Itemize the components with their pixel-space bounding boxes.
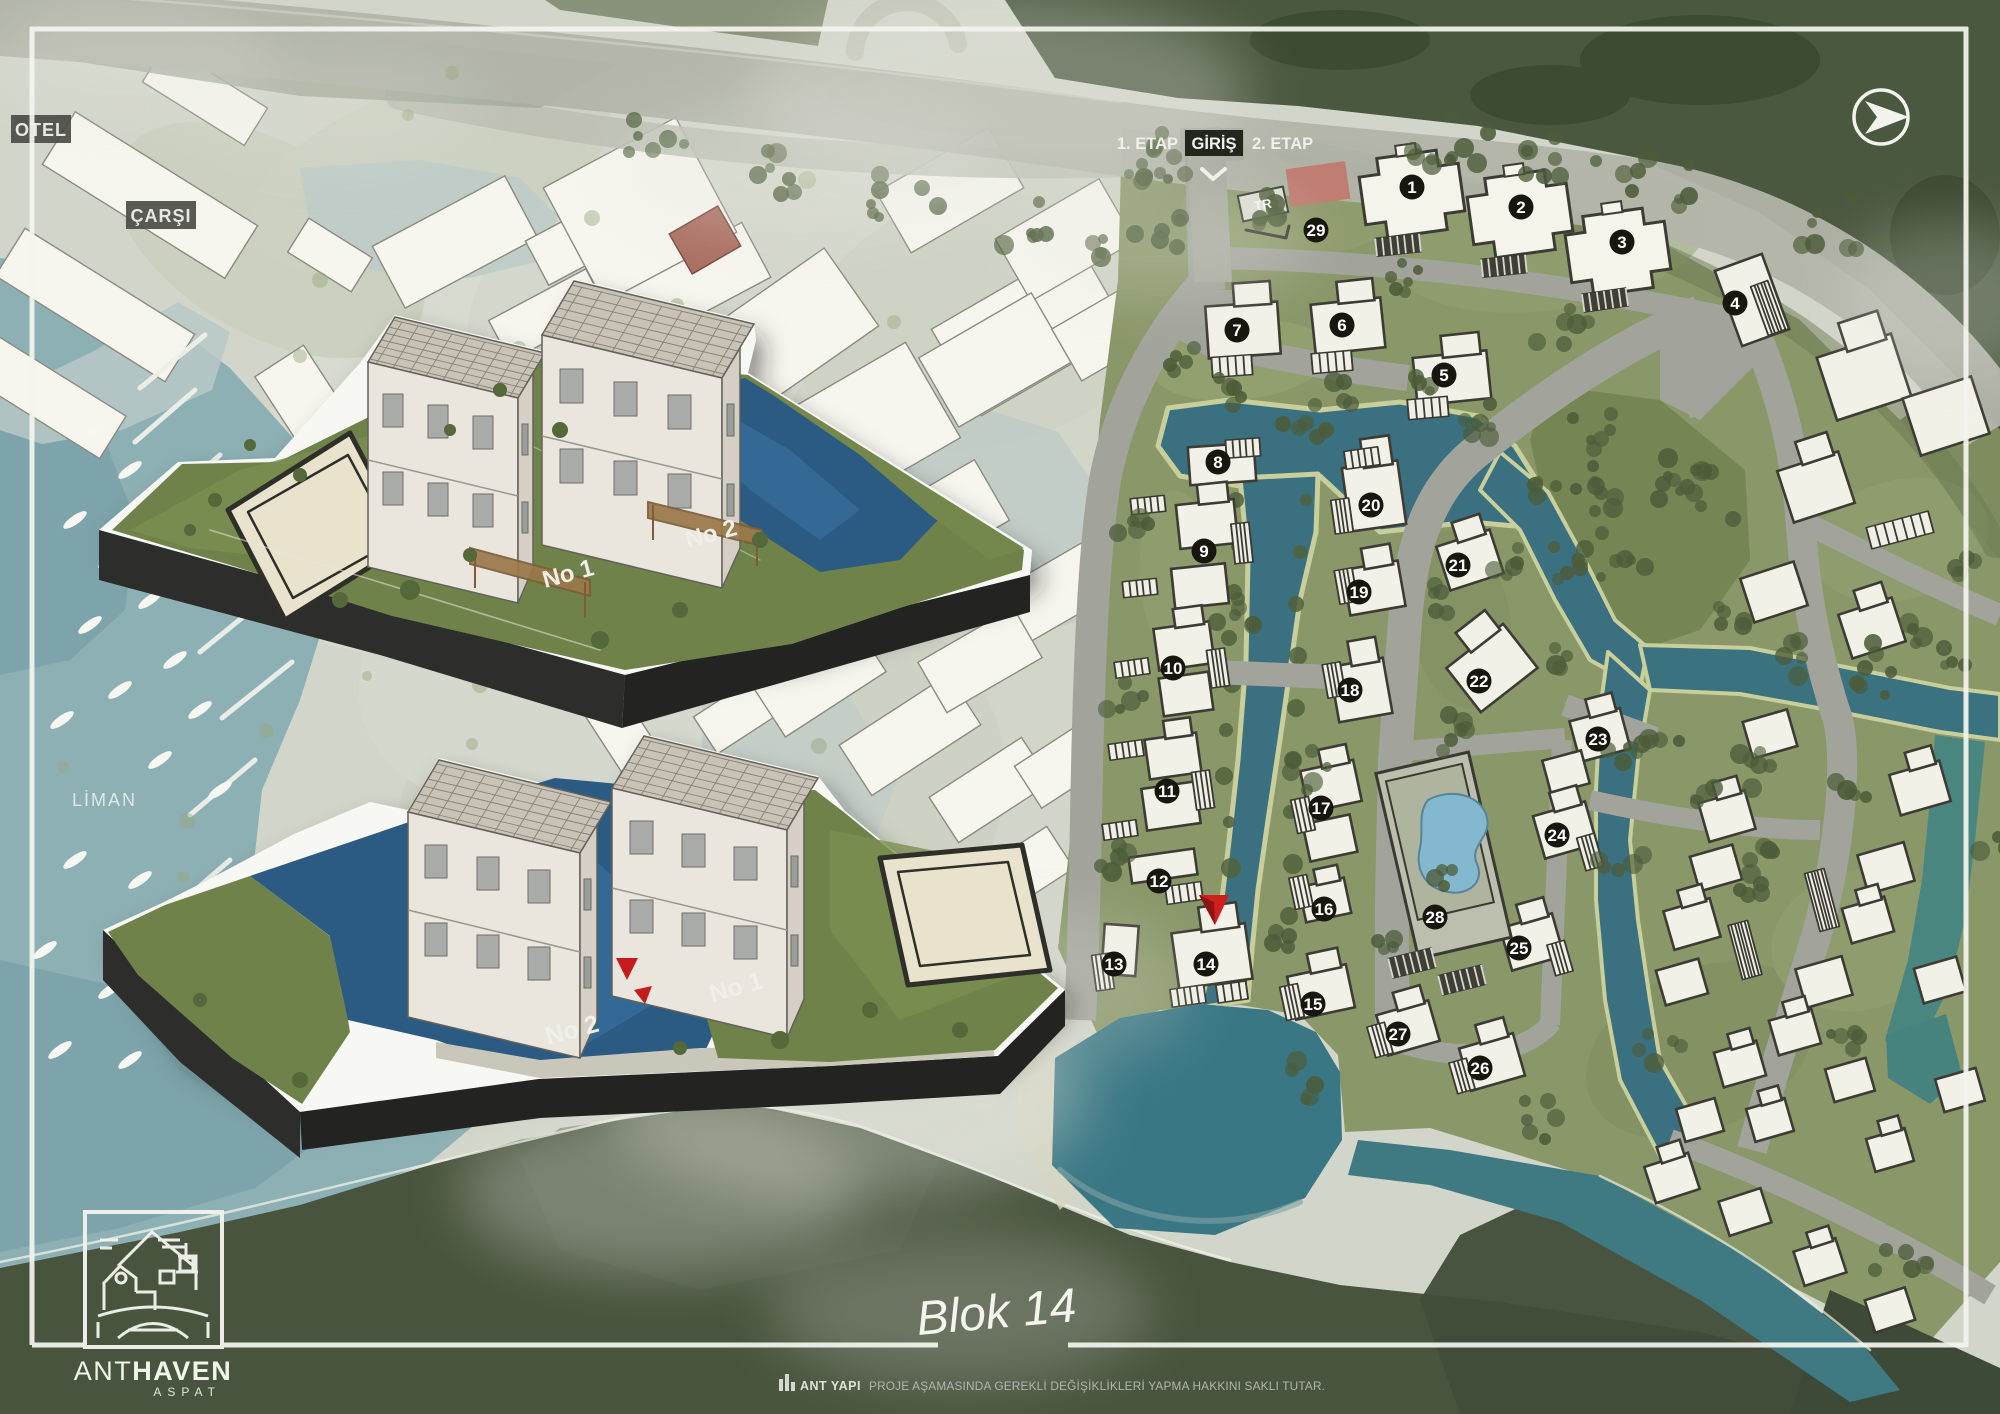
svg-text:8: 8	[1213, 453, 1222, 472]
svg-text:ANT YAPI: ANT YAPI	[800, 1379, 861, 1393]
svg-text:14: 14	[1197, 955, 1216, 974]
svg-text:25: 25	[1510, 939, 1529, 958]
svg-text:LİMAN: LİMAN	[72, 790, 137, 810]
svg-text:OTEL: OTEL	[15, 120, 67, 140]
svg-text:3: 3	[1617, 233, 1626, 252]
svg-text:23: 23	[1589, 730, 1608, 749]
svg-text:2. ETAP: 2. ETAP	[1252, 135, 1313, 153]
svg-text:19: 19	[1350, 583, 1369, 602]
svg-text:5: 5	[1439, 366, 1448, 385]
svg-text:17: 17	[1312, 799, 1331, 818]
svg-text:2: 2	[1516, 198, 1525, 217]
svg-text:21: 21	[1449, 556, 1468, 575]
svg-text:6: 6	[1337, 316, 1346, 335]
svg-text:29: 29	[1307, 221, 1326, 240]
svg-text:26: 26	[1471, 1059, 1490, 1078]
svg-text:PROJE AŞAMASINDA GEREKLİ DEĞİŞ: PROJE AŞAMASINDA GEREKLİ DEĞİŞİKLİKLERİ …	[869, 1379, 1325, 1393]
svg-text:28: 28	[1426, 908, 1445, 927]
svg-text:15: 15	[1304, 995, 1323, 1014]
svg-text:1: 1	[1407, 178, 1416, 197]
svg-text:ANTHAVEN: ANTHAVEN	[74, 1356, 233, 1386]
svg-text:22: 22	[1470, 672, 1489, 691]
svg-text:18: 18	[1341, 681, 1360, 700]
svg-text:11: 11	[1158, 782, 1176, 801]
svg-text:ASPAT: ASPAT	[153, 1385, 221, 1399]
svg-text:10: 10	[1164, 659, 1183, 678]
svg-text:16: 16	[1315, 900, 1334, 919]
svg-text:ÇARŞI: ÇARŞI	[130, 206, 191, 226]
svg-text:7: 7	[1232, 321, 1241, 340]
svg-text:24: 24	[1548, 826, 1567, 845]
svg-text:20: 20	[1362, 496, 1381, 515]
svg-text:12: 12	[1150, 872, 1169, 891]
svg-text:27: 27	[1389, 1025, 1408, 1044]
svg-text:GİRİŞ: GİRİŞ	[1192, 135, 1237, 153]
svg-text:13: 13	[1105, 955, 1124, 974]
svg-text:4: 4	[1730, 294, 1740, 313]
svg-text:9: 9	[1199, 542, 1208, 561]
svg-text:TR: TR	[1253, 196, 1273, 214]
svg-text:1. ETAP: 1. ETAP	[1117, 135, 1178, 153]
